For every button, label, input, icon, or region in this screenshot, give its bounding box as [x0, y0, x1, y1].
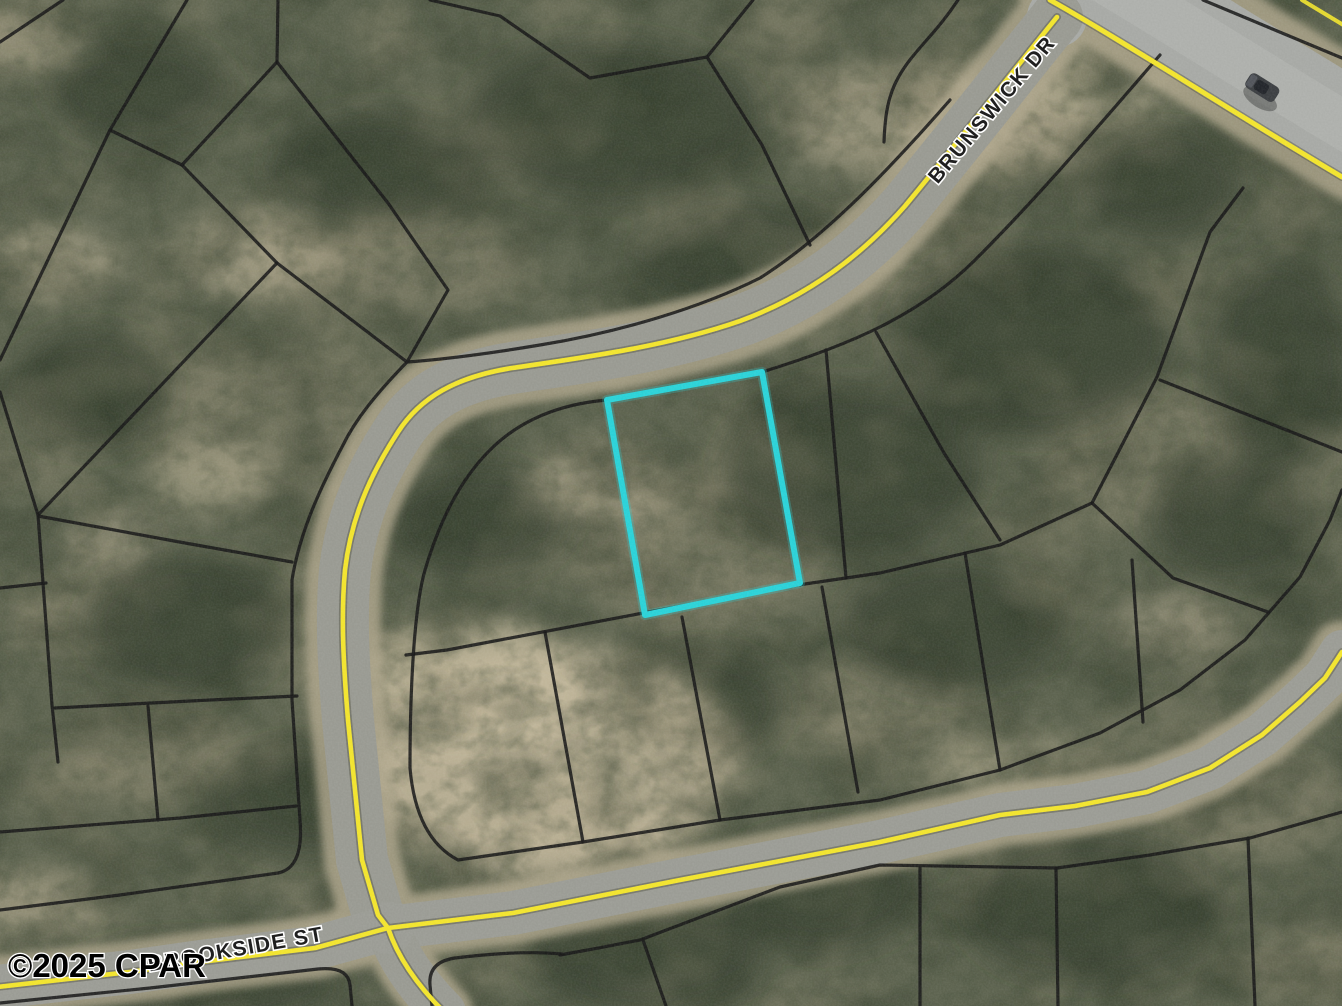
grain-overlay [0, 0, 1342, 1006]
satellite-map: BRUNSWICK DR BROOKSIDE ST ©2025 CPAR [0, 0, 1342, 1006]
copyright-watermark: ©2025 CPAR [8, 947, 206, 984]
listing-photo-stage: BRUNSWICK DR BROOKSIDE ST ©2025 CPAR [0, 0, 1342, 1006]
